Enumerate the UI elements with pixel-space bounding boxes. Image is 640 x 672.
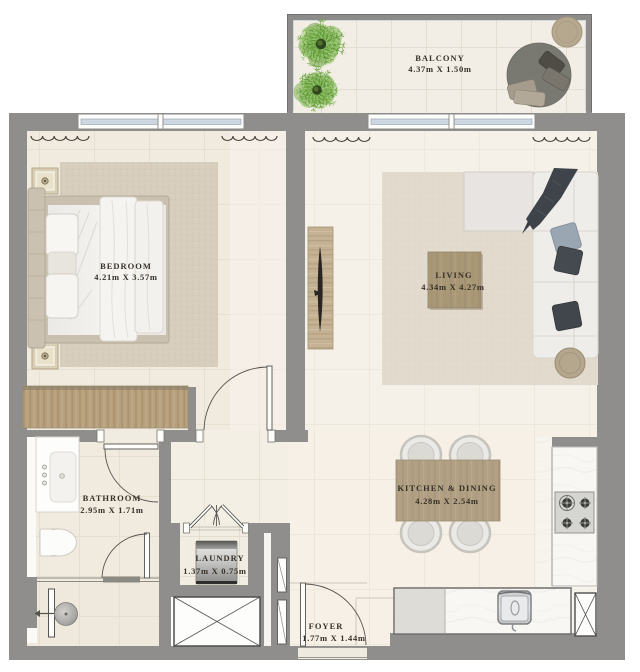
svg-text:1.77m X 1.44m: 1.77m X 1.44m (302, 633, 365, 643)
svg-text:KITCHEN & DINING: KITCHEN & DINING (397, 483, 496, 493)
svg-text:BALCONY: BALCONY (415, 53, 465, 63)
svg-text:LAUNDRY: LAUNDRY (195, 553, 244, 563)
svg-text:FOYER: FOYER (309, 621, 344, 631)
svg-text:LIVING: LIVING (435, 270, 472, 280)
svg-text:4.28m X 2.54m: 4.28m X 2.54m (415, 496, 478, 506)
svg-text:4.21m X 3.57m: 4.21m X 3.57m (94, 272, 157, 282)
svg-text:BEDROOM: BEDROOM (100, 261, 152, 271)
svg-text:4.34m X 4.27m: 4.34m X 4.27m (421, 282, 484, 292)
svg-text:BATHROOM: BATHROOM (83, 493, 142, 503)
svg-text:2.95m X 1.71m: 2.95m X 1.71m (80, 505, 143, 515)
svg-text:1.37m X 0.75m: 1.37m X 0.75m (183, 566, 246, 576)
svg-text:4.37m X 1.50m: 4.37m X 1.50m (408, 64, 471, 74)
